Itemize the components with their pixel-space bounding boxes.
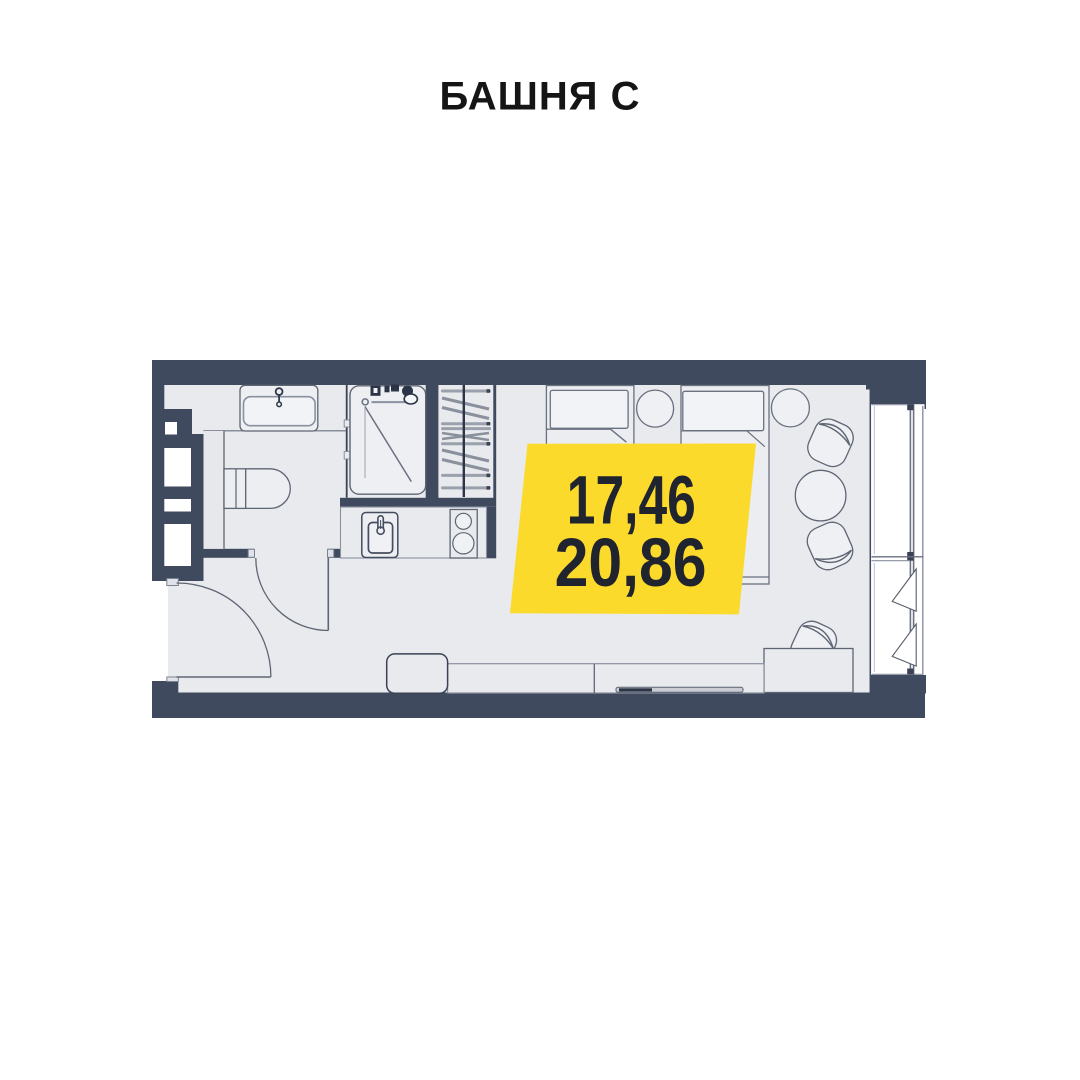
svg-text:БАШНЯ С: БАШНЯ С [440, 74, 641, 118]
svg-text:20,86: 20,86 [555, 524, 707, 601]
